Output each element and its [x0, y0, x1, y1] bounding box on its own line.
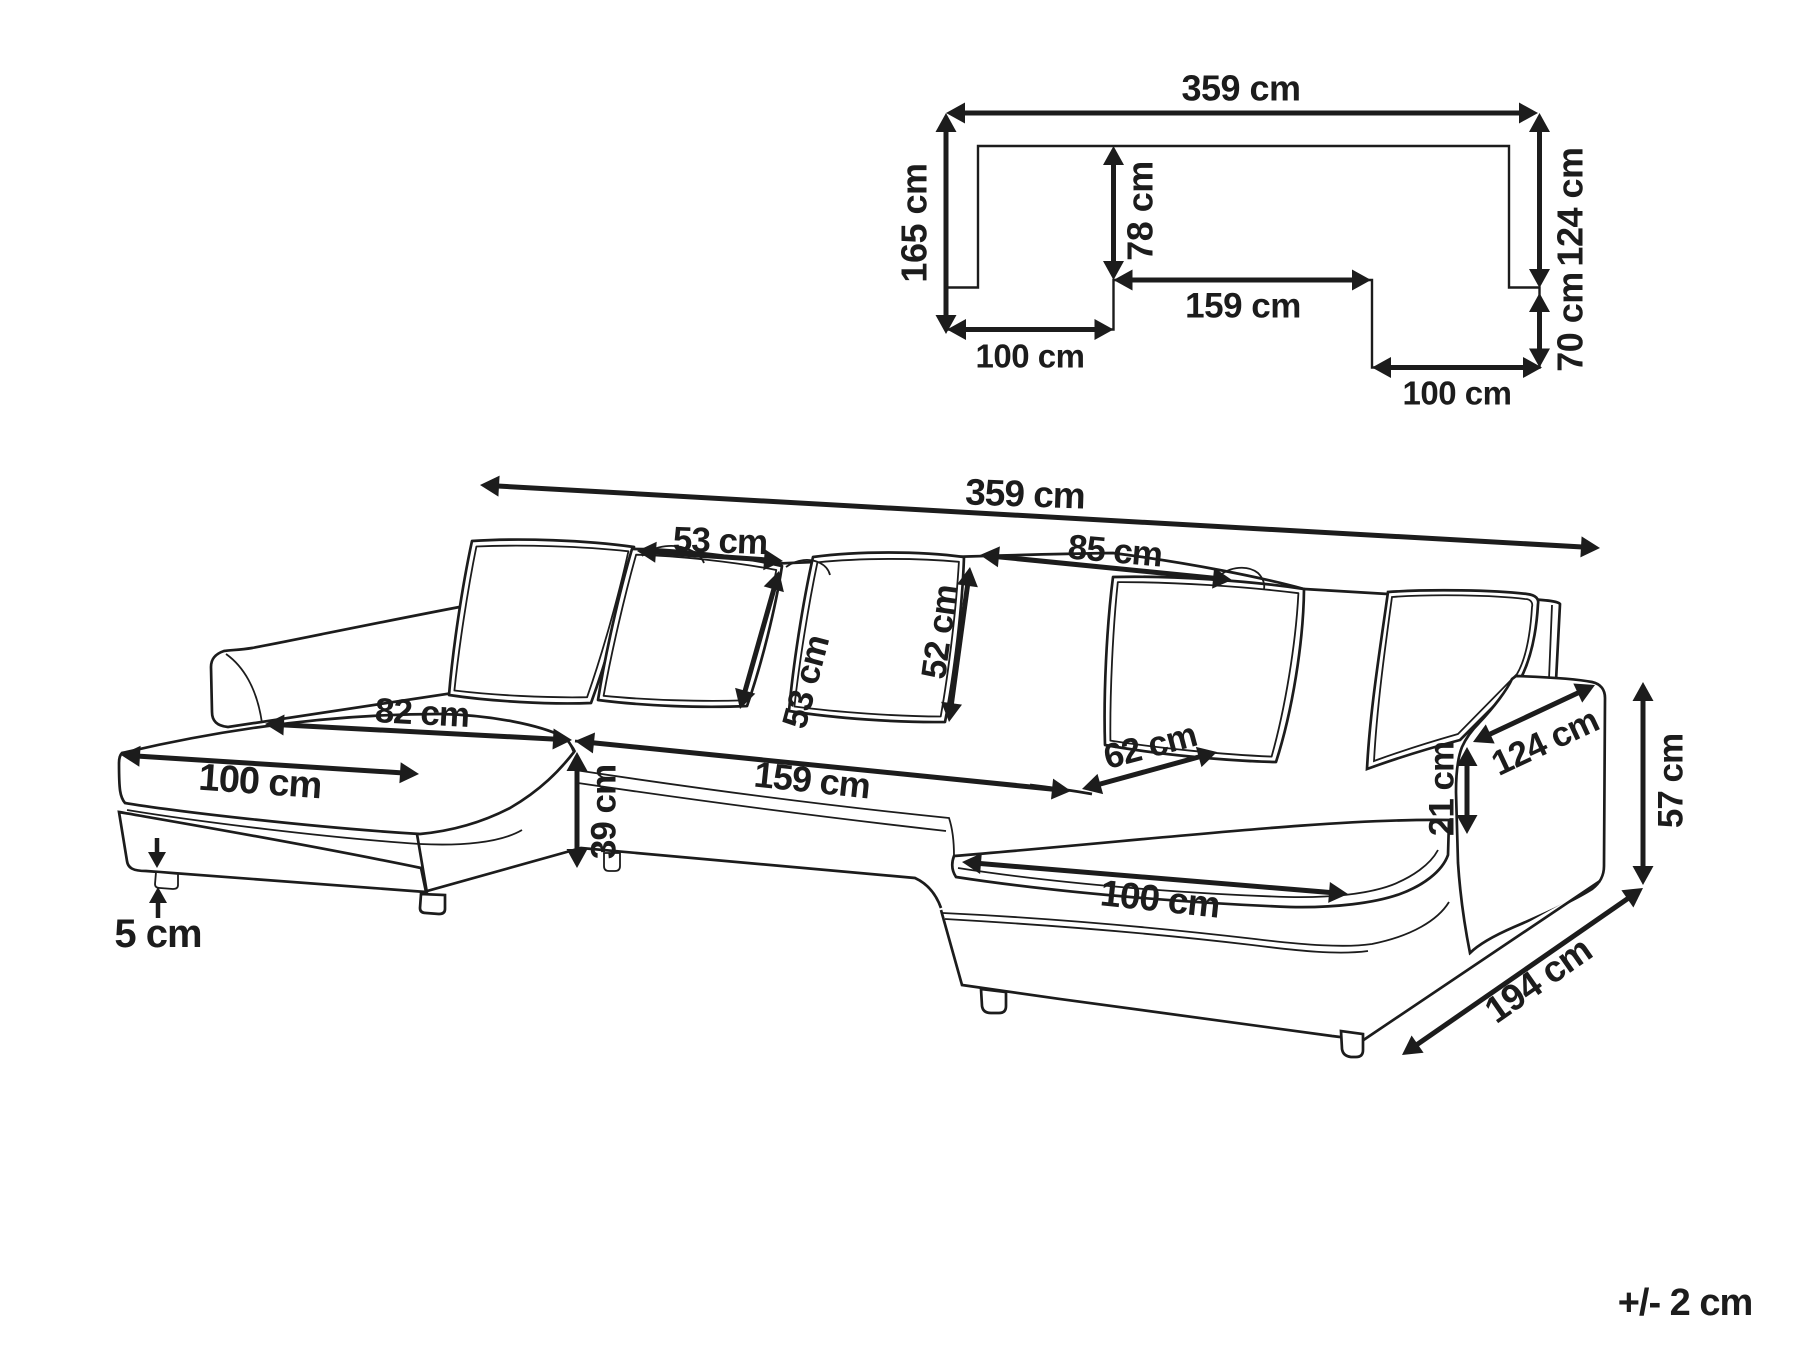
svg-text:82 cm: 82 cm: [374, 691, 470, 735]
svg-text:39 cm: 39 cm: [585, 765, 624, 859]
svg-text:159 cm: 159 cm: [1185, 287, 1301, 326]
svg-text:5 cm: 5 cm: [114, 912, 201, 956]
svg-text:359 cm: 359 cm: [965, 471, 1086, 516]
svg-text:21 cm: 21 cm: [1423, 742, 1462, 836]
svg-text:124 cm: 124 cm: [1550, 147, 1591, 266]
svg-text:85 cm: 85 cm: [1066, 527, 1163, 574]
svg-text:165 cm: 165 cm: [894, 163, 935, 282]
svg-text:100 cm: 100 cm: [976, 338, 1085, 375]
svg-text:57 cm: 57 cm: [1652, 734, 1691, 828]
svg-text:359 cm: 359 cm: [1181, 68, 1300, 109]
svg-text:100 cm: 100 cm: [1403, 375, 1512, 412]
svg-text:+/- 2 cm: +/- 2 cm: [1618, 1282, 1753, 1324]
svg-text:70 cm: 70 cm: [1550, 272, 1591, 372]
svg-text:78 cm: 78 cm: [1120, 161, 1161, 261]
svg-text:100 cm: 100 cm: [197, 757, 323, 807]
svg-text:53 cm: 53 cm: [672, 520, 768, 562]
